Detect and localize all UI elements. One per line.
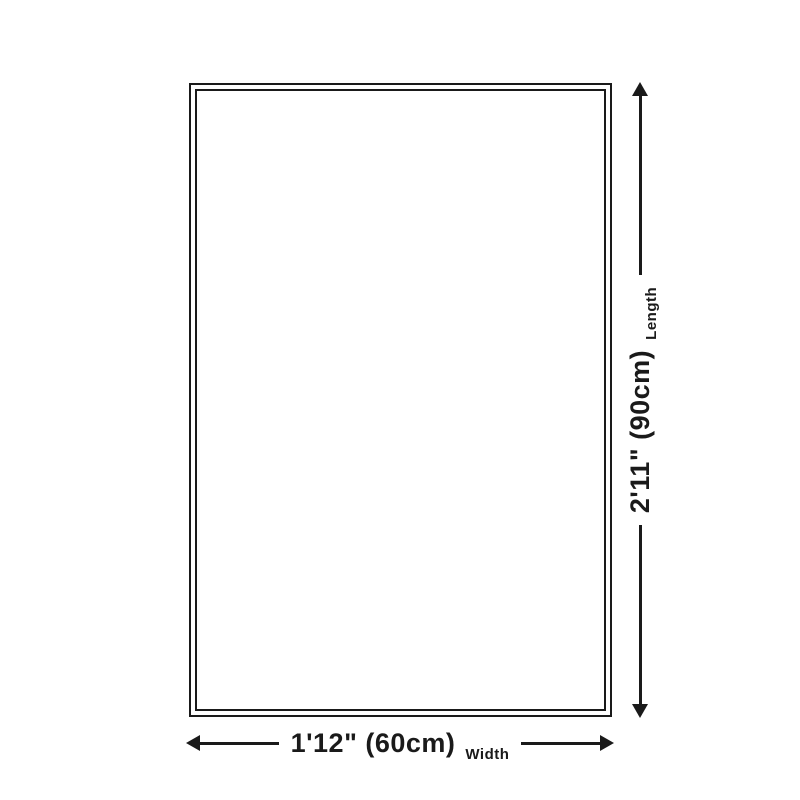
width-dimension-line-left	[200, 742, 279, 745]
arrow-up-icon	[632, 82, 648, 96]
width-dimension-line-right	[521, 742, 600, 745]
length-axis-label: Length	[643, 287, 660, 340]
length-dimension-label: 2'11" (90cm) Length	[625, 275, 656, 525]
arrow-right-icon	[600, 735, 614, 751]
arrow-down-icon	[632, 704, 648, 718]
length-dimension-line-top	[639, 96, 642, 275]
width-axis-label: Width	[465, 746, 509, 763]
width-dimension-label: 1'12" (60cm) Width	[279, 728, 522, 759]
width-dimension: 1'12" (60cm) Width	[186, 724, 614, 762]
length-value: 2'11" (90cm)	[625, 350, 656, 513]
product-outline-inner	[195, 89, 606, 711]
length-dimension: 2'11" (90cm) Length	[621, 82, 659, 718]
length-dimension-line-bottom	[639, 525, 642, 704]
dimension-diagram: 1'12" (60cm) Width 2'11" (90cm) Length	[0, 0, 800, 800]
product-outline-outer	[189, 83, 612, 717]
width-value: 1'12" (60cm)	[291, 728, 456, 759]
arrow-left-icon	[186, 735, 200, 751]
